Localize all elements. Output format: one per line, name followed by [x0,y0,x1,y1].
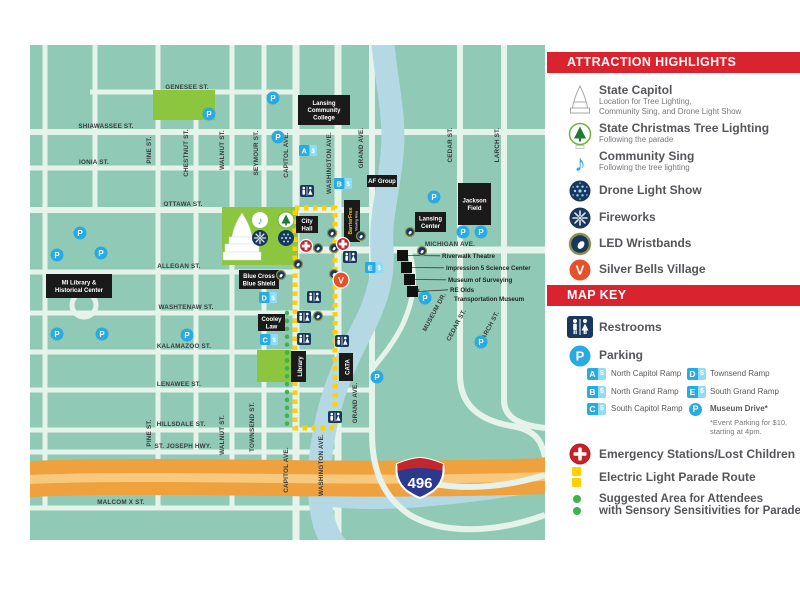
museum-drive-parking-icon: P [689,403,702,416]
svg-text:Lansing: Lansing [419,217,442,223]
ramp-badge-b: B$ [587,386,606,398]
attraction-subtitle: Following the tree lighting [599,163,800,173]
attraction-item-state-capitol: State Capitol Location for Tree Lighting… [566,84,800,116]
svg-text:LENAWEE ST.: LENAWEE ST. [157,381,201,388]
svg-text:P: P [478,338,484,347]
key-item-parking: P Parking [566,344,800,366]
ramp-badge-a: A$ [587,368,606,380]
event-map: 496GENESEE ST.SHIAWASSEE ST.IONIA ST.OTT… [30,45,545,540]
svg-text:B: B [336,179,342,188]
attraction-title: Drone Light Show [599,179,800,201]
svg-text:♪: ♪ [258,216,263,227]
svg-text:P: P [54,330,60,339]
svg-text:*: * [416,287,420,297]
svg-text:HILLSDALE ST.: HILLSDALE ST. [157,421,206,428]
fireworks-icon [566,206,594,235]
attraction-item-drone-show: Drone Light Show [566,179,800,201]
svg-text:E: E [368,263,373,272]
svg-text:CEDAR ST.: CEDAR ST. [447,127,454,162]
svg-text:WASHTENAW ST.: WASHTENAW ST. [158,304,213,311]
silver-bells-event-map-page: { "panel": { "attraction_header": "ATTRA… [0,0,800,600]
svg-text:P: P [270,94,276,103]
attraction-subtitle: Following the parade [599,135,800,145]
svg-text:OTTAWA ST.: OTTAWA ST. [163,201,202,208]
ramp-badge-c: C$ [587,403,606,415]
svg-text:SHIAWASSEE ST.: SHIAWASSEE ST. [78,123,133,130]
svg-text:D: D [261,293,267,302]
drone-show-icon [566,179,594,208]
svg-text:496: 496 [407,475,432,492]
attraction-title: LED Wristbands [599,232,800,254]
svg-text:P: P [77,229,83,238]
svg-text:WALNUT ST.: WALNUT ST. [219,415,226,455]
attraction-subtitle: Community Sing, and Drone Light Show [599,107,800,117]
svg-text:WASHINGTON AVE.: WASHINGTON AVE. [318,434,325,496]
svg-text:Field: Field [467,206,481,212]
svg-text:V: V [338,275,344,285]
svg-text:P: P [275,133,281,142]
event-parking-note: *Event Parking for $10, starting at 4pm. [710,418,787,436]
svg-text:♪: ♪ [574,150,586,176]
svg-text:Law: Law [266,324,278,330]
svg-text:A: A [301,146,307,155]
key-label: Emergency Stations/Lost Children [599,443,800,465]
ramp-label: North Grand Ramp [611,386,679,398]
svg-text:LARCH ST.: LARCH ST. [494,128,501,163]
svg-text:WASHINGTON AVE.: WASHINGTON AVE. [326,132,333,194]
svg-text:TOWNSEND ST.: TOWNSEND ST. [249,402,256,452]
map-key-header: MAP KEY [547,285,800,306]
attraction-title: Community Sing [599,150,800,163]
svg-text:P: P [98,249,104,258]
state-capitol-icon [566,84,594,121]
svg-text:Impression 5 Science Center: Impression 5 Science Center [446,265,531,272]
svg-text:P: P [576,349,585,364]
restrooms-icon [566,316,594,343]
svg-text:P: P [184,331,190,340]
attraction-subtitle: Location for Tree Lighting, [599,97,800,107]
svg-text:MALCOM X ST.: MALCOM X ST. [97,499,145,506]
event-map-canvas: 496GENESEE ST.SHIAWASSEE ST.IONIA ST.OTT… [30,45,545,540]
key-item-restrooms: Restrooms [566,316,800,338]
attraction-highlights-header: ATTRACTION HIGHLIGHTS [547,52,800,73]
svg-text:P: P [460,228,466,237]
key-label: Restrooms [599,316,800,338]
attraction-item-led-wristbands: LED Wristbands [566,232,800,254]
svg-text:ST. JOSEPH HWY.: ST. JOSEPH HWY. [155,443,212,450]
svg-text:CHESTNUT ST.: CHESTNUT ST. [183,129,190,177]
parade-route-dash-icon [572,467,581,476]
svg-text:V: V [576,263,585,278]
attraction-item-fireworks: Fireworks [566,206,800,228]
svg-text:SEYMOUR ST.: SEYMOUR ST. [253,131,260,176]
svg-text:RE Olds: RE Olds [450,287,475,294]
svg-text:P: P [54,251,60,260]
ramp-badge-d: D$ [687,368,706,380]
attraction-item-community-sing: ♪ Community Sing Following the tree ligh… [566,150,800,173]
svg-text:Transportation Museum: Transportation Museum [454,296,525,303]
ramp-label: South Grand Ramp [710,386,779,398]
ramp-label: North Capitol Ramp [611,368,681,380]
silver-bells-village-marker: V [333,272,349,288]
svg-text:P: P [99,330,105,339]
svg-text:PINE ST.: PINE ST. [146,419,153,446]
sensory-area-dot-icon [573,507,581,515]
ramp-badge-e: E$ [687,386,706,398]
key-label: Parking [599,344,800,366]
key-item-emergency: Emergency Stations/Lost Children [566,443,800,465]
svg-text:GRAND AVE.: GRAND AVE. [352,383,359,424]
svg-text:Viewing Area: Viewing Area [354,211,358,231]
svg-text:MI Library &: MI Library & [62,281,97,287]
attraction-item-tree-lighting: State Christmas Tree Lighting Following … [566,122,800,145]
silver-bells-village-icon: V [566,258,594,287]
svg-text:Historical Center: Historical Center [55,288,104,294]
sensory-label-line1: Suggested Area for Attendees [599,493,763,505]
svg-text:College: College [313,116,335,122]
svg-text:Cooley: Cooley [261,317,282,323]
svg-text:P: P [478,228,484,237]
svg-text:Hall: Hall [301,226,312,232]
parade-route-dash-icon [572,478,581,487]
key-label: Electric Light Parade Route [599,466,800,488]
svg-text:PINE ST.: PINE ST. [146,136,153,163]
svg-text:IONIA ST.: IONIA ST. [79,159,109,166]
svg-text:C: C [262,335,268,344]
attraction-item-silver-bells-village: V Silver Bells Village [566,258,800,280]
svg-text:Blue Cross: Blue Cross [243,274,275,280]
svg-text:CATA: CATA [346,358,352,374]
svg-text:Library: Library [298,356,304,377]
svg-text:BarrierFree: BarrierFree [348,207,354,234]
svg-text:P: P [206,110,212,119]
attraction-title: Fireworks [599,206,800,228]
attraction-title: State Capitol [599,84,800,97]
svg-text:Riverwalk Theatre: Riverwalk Theatre [442,253,496,260]
svg-text:ALLEGAN ST.: ALLEGAN ST. [157,263,201,270]
svg-text:Lansing: Lansing [312,101,335,107]
svg-text:Museum of Surveying: Museum of Surveying [448,277,513,284]
svg-text:CAPITOL AVE.: CAPITOL AVE. [283,447,290,493]
svg-text:Center: Center [421,224,441,230]
svg-text:P: P [431,193,437,202]
svg-text:Community: Community [308,108,342,114]
svg-text:Blue Shield: Blue Shield [243,281,276,287]
ramp-label: South Capitol Ramp [611,403,683,415]
key-item-parade-route: Electric Light Parade Route [566,466,800,488]
sensory-label-line2: with Sensory Sensitivities for Parade Vi… [599,505,800,517]
svg-text:MICHIGAN AVE.: MICHIGAN AVE. [425,241,475,248]
svg-text:Jackson: Jackson [462,199,486,205]
svg-text:City: City [301,219,313,225]
svg-text:WALNUT ST.: WALNUT ST. [219,130,226,170]
attraction-title: Silver Bells Village [599,258,800,280]
ramp-label: Townsend Ramp [710,368,770,380]
attraction-title: State Christmas Tree Lighting [599,122,800,135]
svg-text:AF Group: AF Group [368,179,396,185]
svg-text:KALAMAZOO ST.: KALAMAZOO ST. [157,343,211,350]
sensory-area-dot-icon [573,495,581,503]
svg-text:GRAND AVE.: GRAND AVE. [358,128,365,169]
svg-text:P: P [374,373,380,382]
svg-text:GENESEE ST.: GENESEE ST. [165,84,209,91]
svg-text:P: P [422,294,428,303]
led-wristband-icon [566,232,594,261]
ramp-label-museum-drive: Museum Drive* [710,403,768,415]
